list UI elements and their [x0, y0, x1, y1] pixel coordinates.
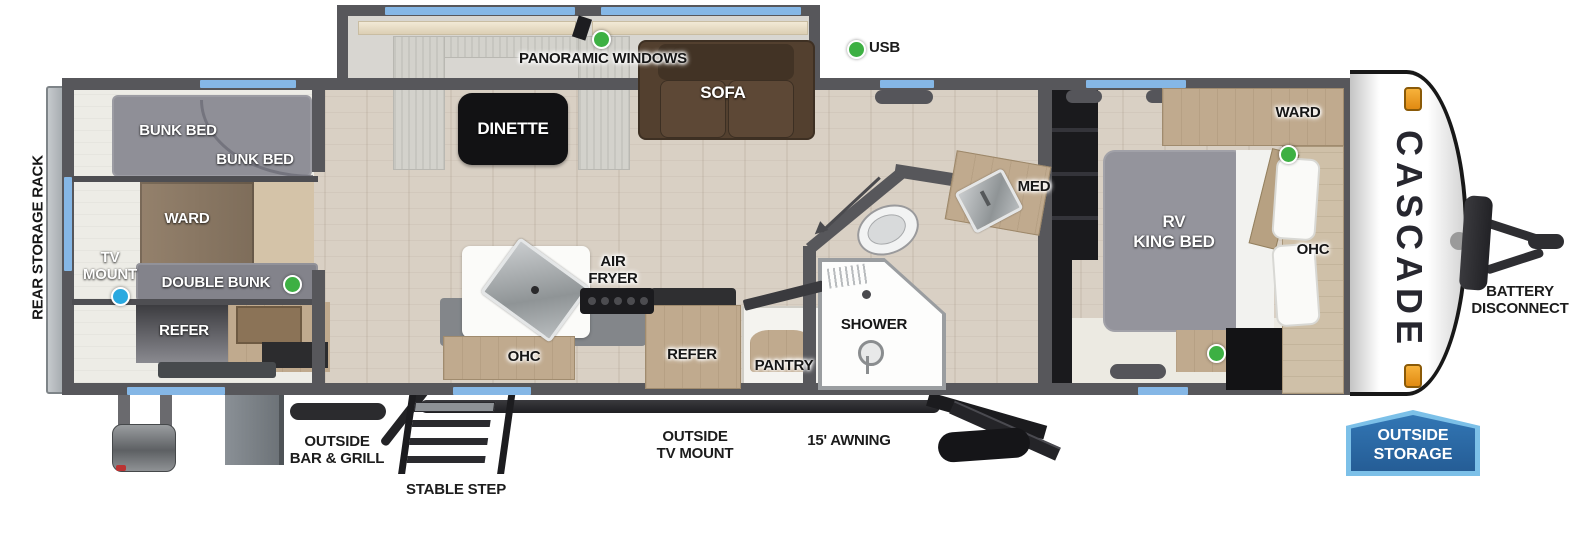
- ladder-rung-4: [407, 456, 486, 463]
- hall-valance-top: [875, 90, 933, 104]
- med-sink-faucet: [980, 190, 991, 206]
- rv-king-bed-line1: RV: [1163, 212, 1186, 231]
- dinette-label: DINETTE: [458, 120, 568, 137]
- rv-king-bed-label: RV KING BED: [1103, 212, 1245, 252]
- bedroom-closet-black: [1052, 90, 1098, 260]
- bed-pillow-top: [1271, 157, 1321, 242]
- tv-mount-line2: MOUNT: [83, 266, 137, 283]
- marker-light-top: [1404, 87, 1422, 111]
- valance-slideout-left: [358, 21, 576, 35]
- double-bunk-marker: [283, 275, 302, 294]
- cascade-logo: CASCADE: [1386, 90, 1430, 390]
- awning-arm-base: [937, 427, 1031, 463]
- battery-disconnect-label: BATTERY DISCONNECT: [1448, 283, 1590, 317]
- bedroom-valance-bottom: [1110, 364, 1166, 379]
- window-top-hall: [880, 80, 934, 88]
- window-bottom-bunkroom: [127, 387, 225, 395]
- shower-faucet-stem: [866, 356, 869, 374]
- outside-storage-line1: OUTSIDE: [1377, 427, 1448, 444]
- battery-disconnect-body: [1459, 195, 1493, 291]
- tv-mount-label: TV MOUNT: [68, 249, 152, 283]
- rv-king-bed-line2: KING BED: [1133, 232, 1215, 251]
- bunkroom-divider-upper: [72, 176, 318, 182]
- shower-faucet: [858, 340, 884, 366]
- outside-storage-label: OUTSIDE STORAGE: [1346, 426, 1480, 464]
- kitchen-refer-label: REFER: [645, 346, 739, 363]
- stable-step-label: STABLE STEP: [396, 481, 516, 498]
- bunkroom-passthru-deck: [252, 182, 314, 266]
- hitch-arm-lower: [1485, 248, 1545, 275]
- battery-disconnect-line1: BATTERY: [1486, 283, 1554, 300]
- outside-bar-grill-line1: OUTSIDE: [304, 433, 369, 450]
- outside-storage-line2: STORAGE: [1374, 446, 1453, 463]
- kitchen-ohc-label: OHC: [489, 348, 559, 365]
- kitchen-stove: [580, 288, 654, 314]
- marker-light-bottom: [1404, 364, 1422, 388]
- bunkroom-divider-lower: [72, 299, 318, 305]
- ladder-rung-3: [409, 438, 488, 445]
- med-label: MED: [1005, 178, 1063, 195]
- hall-valance-top-2: [1066, 90, 1102, 103]
- window-top-bedroom: [1086, 80, 1186, 88]
- kitchen-sink-drain: [529, 284, 540, 295]
- bunk-bed-lower-label: BUNK BED: [185, 151, 325, 168]
- kitchenette-microwave: [236, 306, 302, 344]
- air-fryer-line1: AIR: [600, 253, 625, 270]
- awning-label: 15' AWNING: [789, 432, 909, 449]
- toilet-seat: [863, 209, 911, 251]
- ladder-rung-1: [414, 402, 495, 412]
- pantry-label: PANTRY: [740, 357, 828, 374]
- bedroom-nightstand-marker: [1207, 344, 1226, 363]
- bedroom-tv-cabinet: [1226, 328, 1282, 390]
- shower-drain: [862, 290, 871, 299]
- water-tank-cap: [116, 465, 126, 471]
- battery-disconnect-line2: DISCONNECT: [1471, 300, 1568, 317]
- window-bottom-kitchen: [453, 387, 531, 395]
- bedroom-closet-strip: [1052, 258, 1072, 386]
- sofa-label: SOFA: [673, 84, 773, 101]
- dinette-bench-left: [393, 36, 445, 170]
- bedroom-ohc-label: OHC: [1282, 241, 1344, 258]
- window-slideout-right: [601, 7, 801, 15]
- floorplan-diagram: REAR STORAGE RACK DINETTE SOFA PANORAMIC…: [0, 0, 1590, 548]
- bunk-bed-upper-label: BUNK BED: [108, 122, 248, 139]
- panoramic-windows-marker: [592, 30, 611, 49]
- bedroom-ward-label: WARD: [1252, 104, 1344, 121]
- outside-tv-mount-line2: TV MOUNT: [657, 445, 734, 462]
- air-fryer-label: AIR FRYER: [568, 253, 658, 287]
- grill: [290, 403, 386, 420]
- outside-storage-badge: OUTSIDE STORAGE: [1346, 410, 1480, 476]
- usb-marker: [847, 40, 866, 59]
- valance-slideout-right: [592, 21, 808, 35]
- outside-bar-grill-line2: BAR & GRILL: [290, 450, 384, 467]
- outside-tv-mount-line1: OUTSIDE: [662, 428, 727, 445]
- outside-bar-grill-label: OUTSIDE BAR & GRILL: [267, 433, 407, 467]
- slideout-wall-left: [337, 5, 348, 88]
- panoramic-windows-label: PANORAMIC WINDOWS: [468, 50, 738, 67]
- shower-label: SHOWER: [820, 316, 928, 333]
- window-top-bunkroom: [200, 80, 296, 88]
- ladder-rung-2: [412, 420, 491, 427]
- tv-mount-line1: TV: [101, 249, 120, 266]
- kitchenette-counter-edge: [158, 362, 276, 378]
- tv-mount-marker: [111, 287, 130, 306]
- rear-storage-rack-label: REAR STORAGE RACK: [30, 148, 47, 328]
- hitch-coupler: [1528, 234, 1564, 249]
- outside-tv-mount-label: OUTSIDE TV MOUNT: [625, 428, 765, 462]
- bunkroom-wall-lower: [312, 270, 325, 386]
- stove-burners: [588, 297, 596, 305]
- usb-label: USB: [869, 39, 900, 56]
- window-bottom-bedroom: [1138, 387, 1188, 395]
- double-bunk-label: DOUBLE BUNK: [142, 274, 290, 291]
- bath-bedroom-wall: [1038, 84, 1052, 394]
- bedroom-ward-marker: [1279, 145, 1298, 164]
- water-tank: [112, 424, 176, 472]
- stable-step-ladder: [398, 390, 516, 474]
- air-fryer-line2: FRYER: [588, 270, 637, 287]
- bunkroom-ward-label: WARD: [132, 210, 242, 227]
- bunkroom-refer-label: REFER: [138, 322, 230, 339]
- window-slideout-left: [385, 7, 575, 15]
